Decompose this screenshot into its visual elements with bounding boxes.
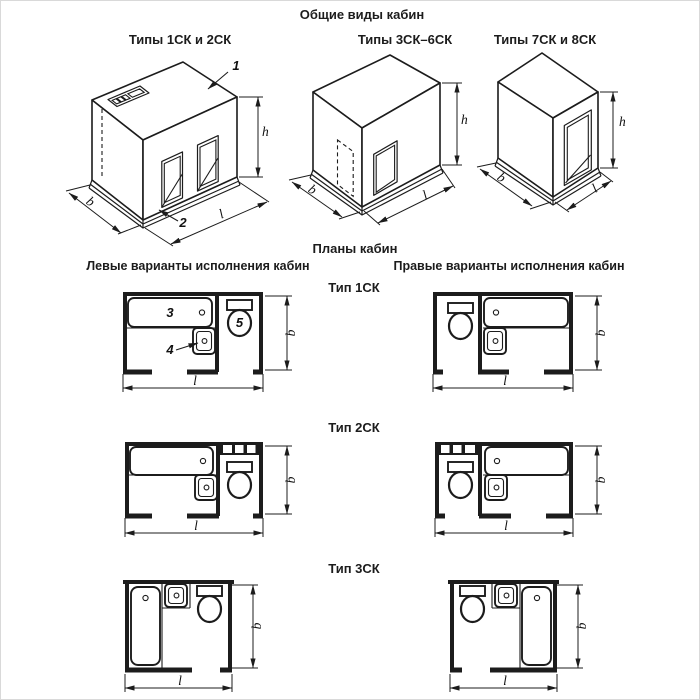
dim-h-extension-lines	[600, 92, 618, 168]
dim-label-l: l	[193, 373, 197, 388]
vent-cell	[223, 445, 232, 453]
general-views-title: Общие виды кабин	[300, 7, 425, 22]
dimension-h: h	[442, 83, 468, 165]
figure-caption-3sk-6sk: Типы 3СК–6СК	[358, 32, 452, 47]
toilet	[197, 586, 222, 622]
dim-label-b: b	[495, 169, 509, 185]
callout-1-label: 1	[232, 58, 239, 73]
left-variants-header: Левые варианты исполнения кабин	[86, 259, 309, 273]
row-label-type-1sk: Тип 1СК	[328, 280, 379, 295]
vent-block	[435, 442, 482, 455]
toilet	[460, 586, 485, 622]
dim-label-b: b	[593, 476, 608, 483]
washbasin	[495, 584, 517, 607]
toilet	[448, 303, 473, 339]
dimension-l: l	[123, 373, 263, 392]
callout-5-toilet: 5	[236, 315, 244, 330]
washbasin	[195, 475, 217, 500]
dimension-b: b	[557, 585, 589, 668]
dim-label-l: l	[178, 673, 182, 688]
callout-3-bathtub: 3	[166, 305, 174, 320]
bathtub	[485, 447, 568, 475]
toilet-bowl	[449, 313, 472, 339]
dimension-b: b	[232, 585, 264, 668]
cabin-box	[495, 53, 601, 205]
washbasin	[485, 475, 507, 500]
row-label-type-2sk: Тип 2СК	[328, 420, 379, 435]
vent-block	[216, 442, 263, 455]
toilet	[448, 462, 473, 498]
vent-cell	[441, 445, 450, 453]
dim-label-l: l	[504, 518, 508, 533]
dim-label-b: b	[83, 193, 98, 209]
dimension-l: l	[125, 518, 263, 537]
toilet	[227, 462, 252, 498]
callout-base-panel: 2	[159, 210, 187, 230]
dimension-b: b	[575, 446, 608, 514]
isometric-view-types-7sk-8sk: h b l	[470, 48, 645, 223]
bathtub	[484, 298, 568, 327]
dimension-b: b	[265, 446, 298, 514]
document-canvas: Общие виды кабин Типы 1СК и 2СК Типы 3СК…	[0, 0, 700, 700]
dim-h-extension-lines	[239, 97, 263, 177]
dim-label-b: b	[306, 181, 320, 197]
toilet-cistern	[460, 586, 485, 596]
plans-title: Планы кабин	[312, 241, 397, 256]
plan-type-1sk-left: 3 4 5 b l	[110, 288, 305, 396]
plan-type-3sk-right: b l	[435, 575, 600, 697]
dim-label-h: h	[619, 114, 626, 129]
dim-label-h: h	[262, 124, 269, 139]
dim-label-b: b	[249, 622, 264, 629]
toilet-cistern	[448, 303, 473, 313]
plan-type-2sk-left: b l	[110, 438, 305, 546]
washbasin	[165, 584, 187, 607]
dim-label-l: l	[194, 518, 198, 533]
dim-l-line	[567, 181, 611, 210]
dim-h-extension-lines	[442, 83, 462, 165]
dim-label-l: l	[420, 187, 430, 202]
dimension-l: l	[435, 518, 573, 537]
dim-label-l: l	[217, 206, 227, 221]
dimension-l: l	[433, 373, 573, 392]
isometric-view-types-1sk-2sk: 1 2 h b l	[55, 52, 290, 252]
plan-type-3sk-left: b l	[110, 575, 275, 697]
vent-cell	[453, 445, 462, 453]
toilet-cistern	[197, 586, 222, 596]
dim-label-b: b	[283, 329, 298, 336]
dim-label-h: h	[461, 112, 468, 127]
toilet-bowl	[461, 596, 484, 622]
dimension-l: l	[125, 673, 232, 692]
bathtub	[131, 587, 160, 665]
washbasin	[484, 328, 506, 354]
isometric-view-types-3sk-6sk: h b l	[285, 48, 470, 233]
dim-label-l: l	[503, 373, 507, 388]
plan-type-1sk-right: b l	[420, 288, 615, 396]
dimension-l: l	[450, 673, 557, 692]
dimension-b: b	[575, 296, 608, 370]
callout-roof-panel: 1	[208, 58, 240, 89]
right-variants-header: Правые варианты исполнения кабин	[393, 259, 624, 273]
washbasin	[193, 328, 215, 354]
callout-2-label: 2	[178, 215, 187, 230]
dim-label-l: l	[589, 181, 601, 196]
dim-label-l: l	[503, 673, 507, 688]
vent-cell	[247, 445, 256, 453]
callout-4-washbasin: 4	[165, 342, 174, 357]
toilet-bowl	[449, 472, 472, 498]
toilet-bowl	[228, 472, 251, 498]
dim-label-b: b	[593, 329, 608, 336]
toilet-cistern	[448, 462, 473, 472]
dim-label-b: b	[283, 476, 298, 483]
figure-caption-1sk-2sk: Типы 1СК и 2СК	[129, 32, 231, 47]
bathtub	[522, 587, 551, 665]
dimension-b: b	[265, 296, 298, 370]
dim-label-b: b	[574, 622, 589, 629]
vent-cell	[465, 445, 475, 453]
plan-type-2sk-right: b l	[420, 438, 615, 546]
toilet-cistern	[227, 462, 252, 472]
toilet-cistern	[227, 300, 252, 310]
toilet-bowl	[198, 596, 221, 622]
row-label-type-3sk: Тип 3СК	[328, 561, 379, 576]
vent-cell	[235, 445, 244, 453]
dimension-h: h	[239, 97, 269, 177]
figure-caption-7sk-8sk: Типы 7СК и 8СК	[494, 32, 596, 47]
dimension-h: h	[600, 92, 626, 168]
